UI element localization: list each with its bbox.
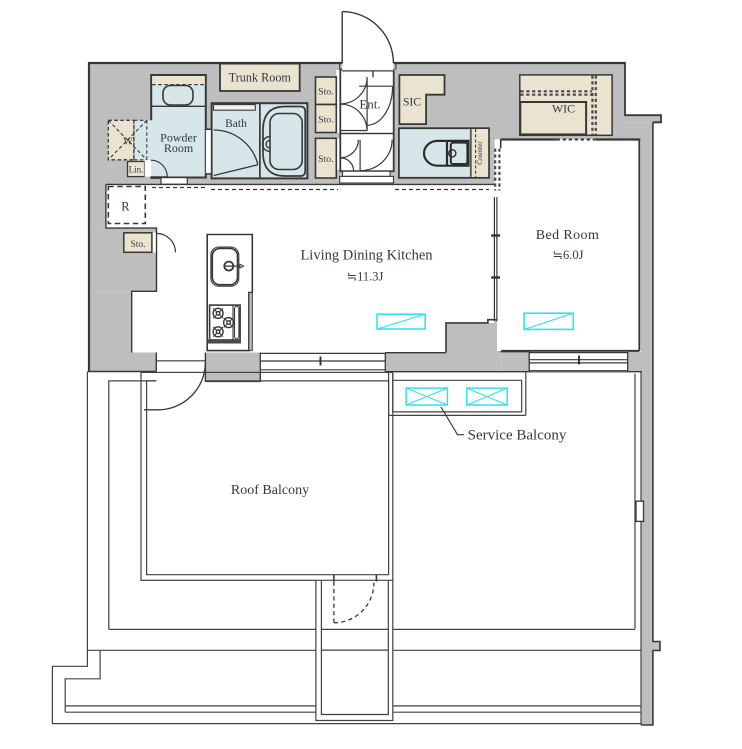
svg-text:Sto.: Sto.: [318, 86, 334, 97]
svg-text:Bath: Bath: [225, 118, 247, 130]
svg-text:Ent.: Ent.: [359, 96, 380, 111]
svg-text:Sto.: Sto.: [318, 114, 334, 125]
svg-text:WIC: WIC: [552, 102, 575, 116]
svg-text:Room: Room: [164, 141, 194, 155]
svg-text:Bed Room: Bed Room: [536, 228, 599, 243]
svg-text:Trunk Room: Trunk Room: [229, 71, 292, 85]
svg-text:Roof Balcony: Roof Balcony: [231, 483, 309, 498]
svg-text:≒11.3J: ≒11.3J: [347, 270, 384, 284]
svg-text:≒6.0J: ≒6.0J: [553, 248, 584, 262]
svg-text:W: W: [123, 137, 133, 148]
svg-text:R: R: [121, 200, 130, 214]
svg-text:Sto.: Sto.: [318, 154, 334, 165]
svg-text:Service Balcony: Service Balcony: [468, 428, 567, 444]
svg-text:Sto.: Sto.: [130, 240, 145, 250]
svg-text:Lin.: Lin.: [129, 165, 144, 175]
svg-text:Living Dining Kitchen: Living Dining Kitchen: [300, 248, 433, 264]
svg-text:SIC: SIC: [403, 95, 421, 109]
svg-text:Counter: Counter: [475, 141, 484, 165]
